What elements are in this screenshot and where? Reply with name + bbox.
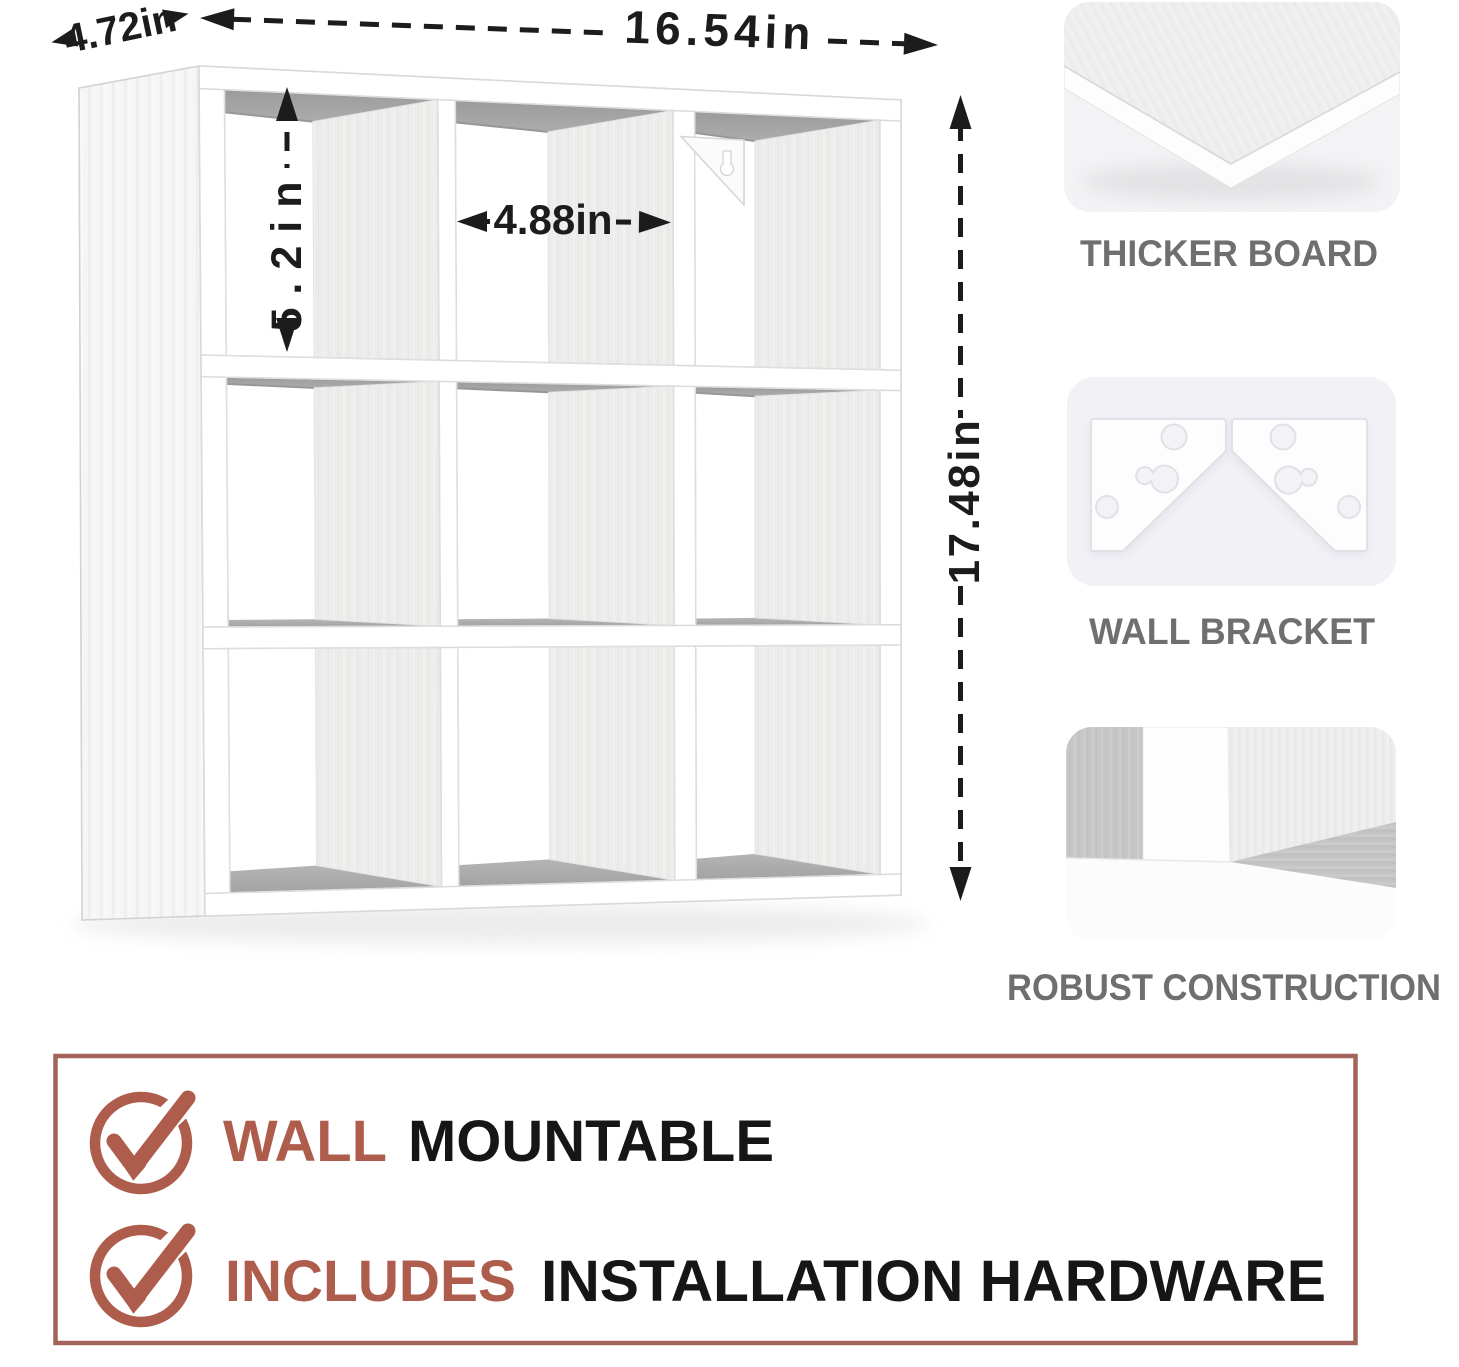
svg-text:WALL BRACKET: WALL BRACKET	[1089, 611, 1375, 652]
svg-text:WALL: WALL	[223, 1109, 387, 1174]
svg-text:ROBUST CONSTRUCTION: ROBUST CONSTRUCTION	[1007, 967, 1441, 1008]
svg-text:5.2in: 5.2in	[263, 169, 311, 332]
svg-text:4.88in: 4.88in	[493, 196, 612, 243]
svg-text:THICKER BOARD: THICKER BOARD	[1080, 233, 1378, 274]
svg-text:INCLUDES: INCLUDES	[225, 1249, 516, 1314]
svg-text:16.54in: 16.54in	[624, 1, 817, 60]
svg-text:INSTALLATION HARDWARE: INSTALLATION HARDWARE	[541, 1249, 1326, 1314]
svg-text:17.48in: 17.48in	[940, 418, 989, 585]
svg-text:MOUNTABLE: MOUNTABLE	[408, 1109, 774, 1174]
